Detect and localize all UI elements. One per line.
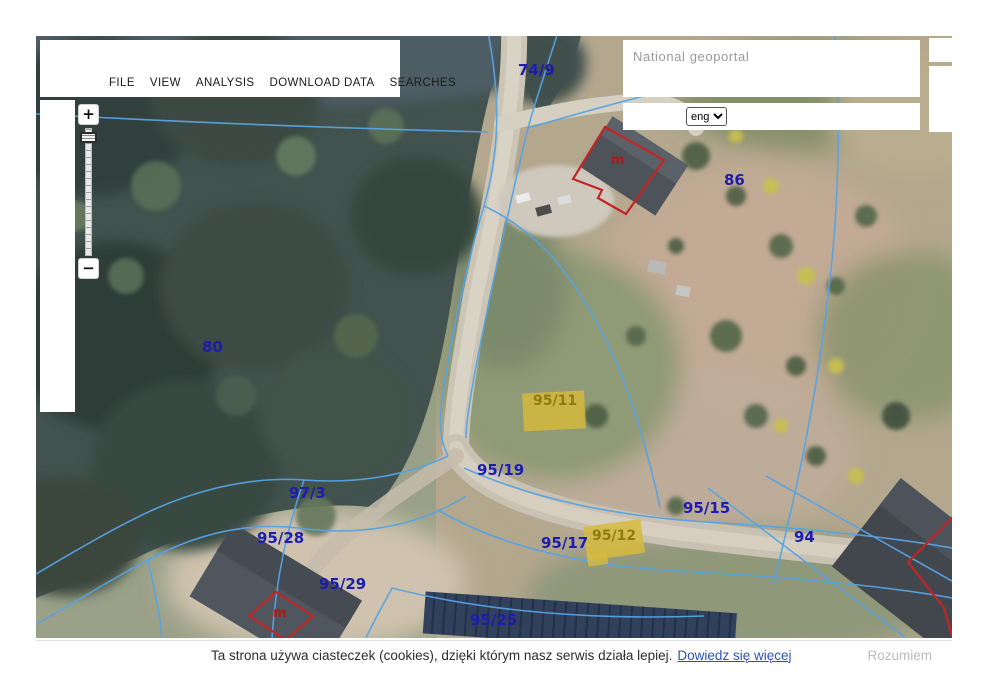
zoom-slider-handle[interactable] bbox=[80, 132, 97, 143]
zoom-out-button[interactable]: − bbox=[78, 258, 99, 279]
cookie-learn-more-link[interactable]: Dowiedz się więcej bbox=[677, 648, 791, 663]
menu-item-view[interactable]: VIEW bbox=[150, 77, 181, 89]
search-panel[interactable]: National geoportal bbox=[623, 40, 920, 97]
menu-item-analysis[interactable]: ANALYSIS bbox=[196, 77, 255, 89]
map-viewport[interactable]: 74/9868095/1195/1997/395/2895/1795/1295/… bbox=[36, 36, 952, 638]
menu-item-searches[interactable]: SEARCHES bbox=[390, 77, 456, 89]
language-bar: eng bbox=[623, 103, 920, 130]
cookie-message: Ta strona używa ciasteczek (cookies), dz… bbox=[211, 648, 672, 663]
map-tool-box-top[interactable] bbox=[929, 38, 952, 62]
map-tool-box-bottom[interactable] bbox=[929, 66, 952, 132]
menubar: FILE VIEW ANALYSIS DOWNLOAD DATA SEARCHE… bbox=[97, 40, 400, 97]
search-placeholder: National geoportal bbox=[633, 49, 749, 64]
logo-box[interactable] bbox=[40, 40, 97, 97]
left-tool-panel[interactable] bbox=[40, 100, 75, 412]
cookie-accept-button[interactable]: Rozumiem bbox=[861, 647, 938, 664]
menu-item-file[interactable]: FILE bbox=[109, 77, 135, 89]
zoom-in-button[interactable]: + bbox=[78, 104, 99, 125]
cookie-bar: Ta strona używa ciasteczek (cookies), dz… bbox=[36, 640, 952, 669]
menu-item-download-data[interactable]: DOWNLOAD DATA bbox=[270, 77, 375, 89]
geoportal-page: 74/9868095/1195/1997/395/2895/1795/1295/… bbox=[0, 0, 989, 699]
zoom-slider-track[interactable] bbox=[85, 128, 92, 256]
language-select[interactable]: eng bbox=[686, 107, 727, 126]
